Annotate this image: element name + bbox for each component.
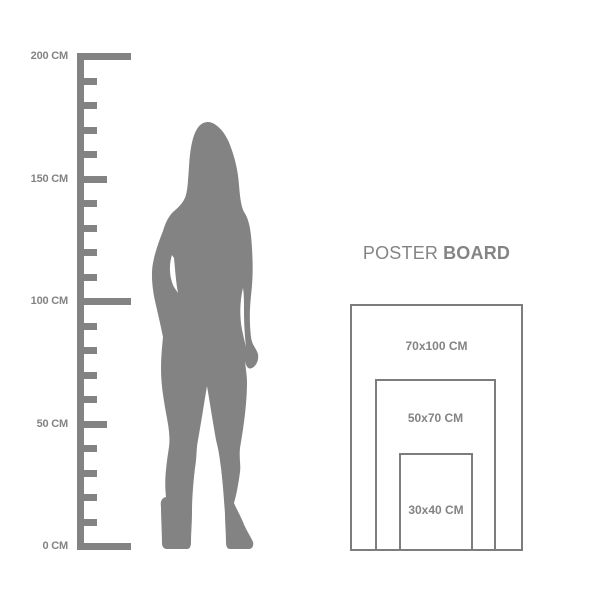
poster-title-bold: BOARD: [443, 243, 510, 263]
woman-body-shape: [152, 122, 258, 549]
poster-size-30x40-label: 30x40 CM: [401, 503, 471, 517]
poster-size-30x40: 30x40 CM: [399, 453, 473, 551]
poster-size-chart: 200 CM 150 CM 100 CM 50 CM 0 CM POSTER B…: [0, 0, 600, 600]
poster-size-70x100-label: 70x100 CM: [352, 339, 521, 353]
poster-size-50x70-label: 50x70 CM: [377, 411, 494, 425]
poster-title-regular: POSTER: [363, 243, 438, 263]
poster-board-title: POSTER BOARD: [350, 243, 523, 265]
